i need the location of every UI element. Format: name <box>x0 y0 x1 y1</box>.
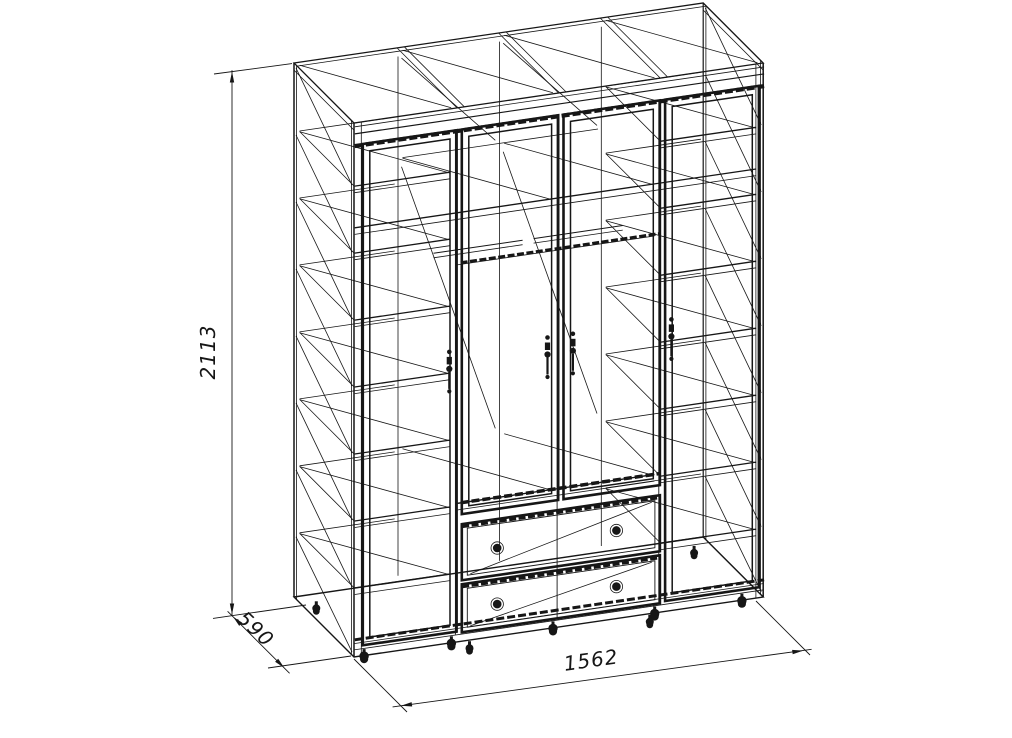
height-dimension-label: 2113 <box>196 325 220 380</box>
wardrobe-axonometric-drawing: 2113 590 1562 <box>0 0 1012 738</box>
technical-drawing-canvas: 2113 590 1562 <box>0 0 1012 738</box>
